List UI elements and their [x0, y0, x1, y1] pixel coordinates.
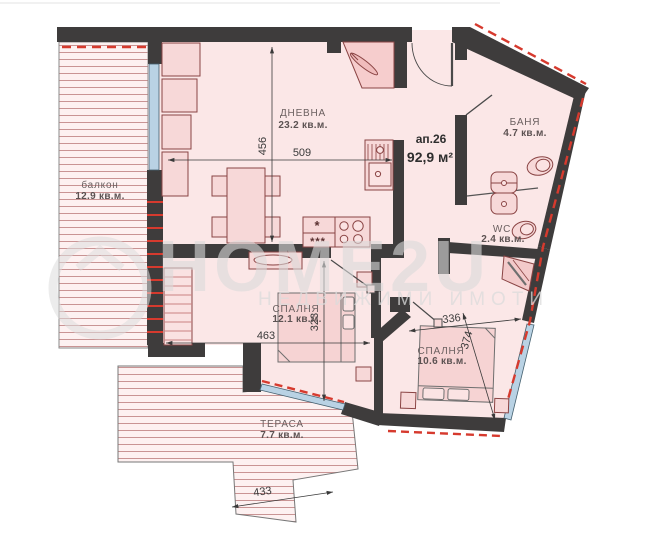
dim-336: 336 [442, 312, 462, 326]
unit-number: ап.26 [416, 132, 447, 146]
shelf-unit-icon [162, 79, 197, 112]
floorplan-image: * *** [0, 0, 666, 539]
nightstand-icon [400, 392, 416, 409]
balcony-area: 12.9 кв.м. [75, 191, 124, 202]
living-room-area: 23.2 кв.м. [278, 120, 327, 131]
chair-icon [212, 176, 227, 196]
dim-463: 463 [257, 330, 275, 342]
shelf-unit-icon [162, 43, 200, 76]
bathroom-label: БАНЯ [510, 117, 541, 128]
unit-area: 92,9 м² [407, 149, 453, 165]
window-living [149, 64, 159, 170]
living-room-label: ДНЕВНА [280, 108, 326, 119]
wall-bath-left-lower [455, 115, 467, 205]
terrace-label: ТЕРАСА [260, 419, 304, 430]
pillow-icon [448, 389, 469, 401]
nightstand-icon [494, 398, 508, 412]
shelf-unit-icon [162, 152, 188, 196]
floorplan-svg: * *** [0, 0, 666, 539]
wall-bedroom1-corner [243, 343, 261, 392]
chair-icon [265, 176, 280, 196]
wall-bedroom2-left [374, 338, 383, 414]
pillow-icon [343, 315, 354, 329]
balcony-label: балкон [81, 179, 118, 191]
dim-509: 509 [293, 147, 311, 159]
dim-433: 433 [253, 485, 273, 499]
kitchen-sink-icon [365, 140, 393, 190]
watermark-tagline: НЕДВИЖИМИ ИМОТИ [258, 289, 549, 310]
shelf-unit-icon [162, 115, 191, 149]
sink-and-washer-icon [491, 172, 517, 214]
terrace-area: 7.7 кв.м. [260, 430, 304, 441]
dim-456: 456 [257, 137, 269, 155]
bedroom2-area: 10.6 кв.м. [417, 356, 466, 367]
wall-top [57, 27, 412, 42]
wall-bath-left-upper [455, 42, 467, 60]
wall-left-upper [148, 42, 162, 64]
bathroom-area: 4.7 кв.м. [503, 128, 547, 139]
wall-kitchen-upper [394, 40, 407, 88]
bedroom1-area: 12.1 кв.м. [272, 314, 321, 325]
wall-pillar [327, 42, 341, 53]
pillow-icon [423, 388, 444, 400]
nightstand-icon [356, 367, 371, 381]
